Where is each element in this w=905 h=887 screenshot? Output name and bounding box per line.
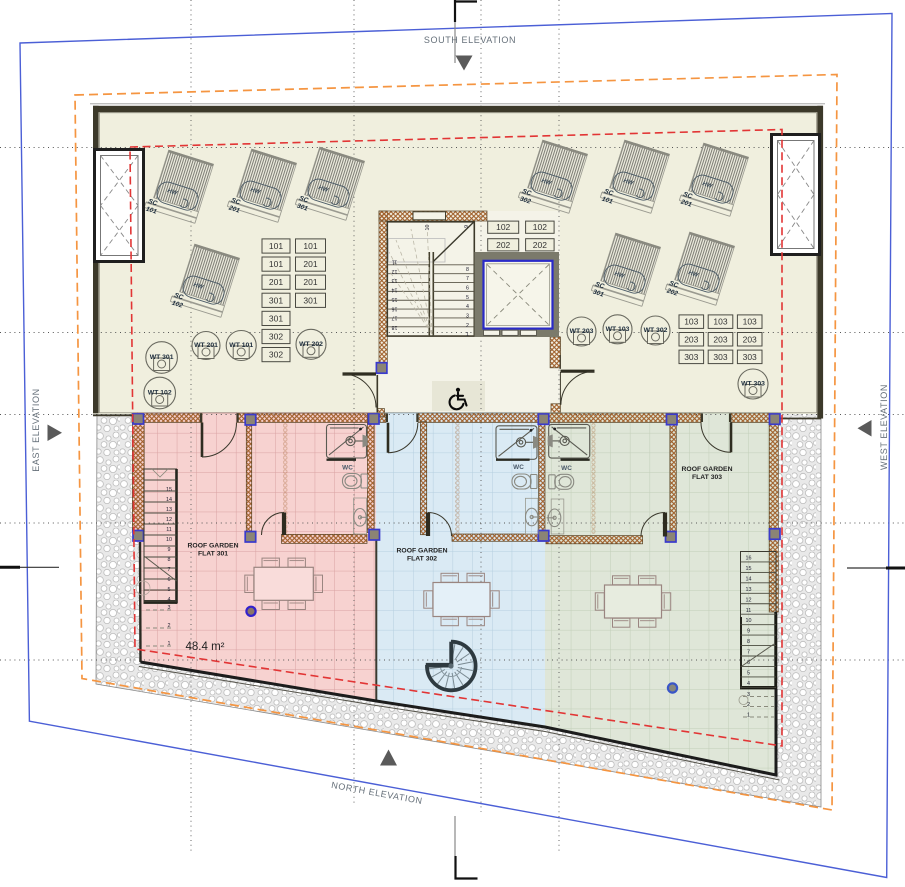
svg-text:2: 2 <box>466 323 469 329</box>
svg-text:3: 3 <box>466 314 469 320</box>
svg-text:9: 9 <box>747 629 750 635</box>
svg-text:6: 6 <box>168 577 171 583</box>
svg-text:WEST ELEVATION: WEST ELEVATION <box>879 384 889 470</box>
svg-text:4: 4 <box>168 597 171 603</box>
svg-text:ROOF GARDEN: ROOF GARDEN <box>188 543 239 550</box>
svg-text:17: 17 <box>392 315 398 321</box>
svg-text:9: 9 <box>464 225 470 228</box>
svg-text:12: 12 <box>746 597 752 603</box>
svg-text:ROOF GARDEN: ROOF GARDEN <box>397 548 448 555</box>
svg-text:16: 16 <box>392 305 398 311</box>
svg-text:303: 303 <box>713 352 727 362</box>
svg-text:15: 15 <box>746 566 752 572</box>
svg-text:201: 201 <box>303 259 317 269</box>
svg-text:13: 13 <box>166 507 172 513</box>
svg-text:11: 11 <box>746 608 752 614</box>
svg-text:WC: WC <box>561 465 572 472</box>
svg-text:202: 202 <box>533 240 547 250</box>
svg-text:13: 13 <box>746 587 752 593</box>
svg-text:101: 101 <box>269 241 283 251</box>
svg-text:WT 201: WT 201 <box>194 342 218 349</box>
svg-text:4: 4 <box>466 304 469 310</box>
svg-text:13: 13 <box>392 277 398 283</box>
svg-text:11: 11 <box>392 259 398 265</box>
svg-text:2: 2 <box>168 623 171 629</box>
svg-text:WT 203: WT 203 <box>570 328 594 335</box>
svg-text:16: 16 <box>746 556 752 562</box>
svg-text:FLAT 302: FLAT 302 <box>407 556 437 563</box>
svg-text:WT 103: WT 103 <box>606 326 630 333</box>
svg-text:4: 4 <box>747 681 750 687</box>
svg-text:302: 302 <box>269 350 283 360</box>
svg-text:8: 8 <box>747 639 750 645</box>
svg-text:15: 15 <box>166 487 172 493</box>
svg-text:WC: WC <box>513 464 524 471</box>
svg-text:15: 15 <box>392 296 398 302</box>
svg-text:102: 102 <box>533 222 547 232</box>
svg-text:1: 1 <box>747 713 750 719</box>
svg-text:WT 102: WT 102 <box>148 390 172 397</box>
svg-text:8: 8 <box>168 557 171 563</box>
svg-text:203: 203 <box>713 334 727 344</box>
svg-text:5: 5 <box>747 670 750 676</box>
svg-text:102: 102 <box>496 222 510 232</box>
svg-text:WT 303: WT 303 <box>741 381 765 388</box>
svg-text:7: 7 <box>168 567 171 573</box>
svg-text:SOUTH ELEVATION: SOUTH ELEVATION <box>424 35 516 45</box>
svg-text:WT 302: WT 302 <box>644 327 668 334</box>
svg-text:ROOF GARDEN: ROOF GARDEN <box>682 466 733 473</box>
svg-text:14: 14 <box>746 576 752 582</box>
svg-text:203: 203 <box>684 334 698 344</box>
svg-text:303: 303 <box>743 352 757 362</box>
svg-text:12: 12 <box>166 517 172 523</box>
svg-text:302: 302 <box>269 332 283 342</box>
svg-text:10: 10 <box>425 225 431 231</box>
svg-text:103: 103 <box>684 317 698 327</box>
svg-text:8: 8 <box>466 267 469 273</box>
svg-text:3: 3 <box>168 605 171 611</box>
svg-text:WT 301: WT 301 <box>150 354 174 361</box>
svg-text:301: 301 <box>269 295 283 305</box>
svg-text:101: 101 <box>303 241 317 251</box>
svg-text:301: 301 <box>269 313 283 323</box>
svg-text:18: 18 <box>392 324 398 330</box>
svg-text:101: 101 <box>269 259 283 269</box>
svg-text:FLAT 301: FLAT 301 <box>198 551 228 558</box>
svg-text:201: 201 <box>269 277 283 287</box>
svg-text:WT 101: WT 101 <box>229 342 253 349</box>
svg-text:WT 202: WT 202 <box>299 341 323 348</box>
svg-text:EAST ELEVATION: EAST ELEVATION <box>31 388 41 471</box>
svg-text:1: 1 <box>168 641 171 647</box>
svg-text:203: 203 <box>743 334 757 344</box>
svg-text:103: 103 <box>713 317 727 327</box>
svg-text:103: 103 <box>743 317 757 327</box>
svg-text:10: 10 <box>166 537 172 543</box>
svg-text:14: 14 <box>392 287 398 293</box>
svg-text:5: 5 <box>466 295 469 301</box>
svg-text:201: 201 <box>303 277 317 287</box>
svg-text:12: 12 <box>392 268 398 274</box>
svg-text:9: 9 <box>168 547 171 553</box>
svg-text:48.4 m²: 48.4 m² <box>186 641 225 653</box>
svg-text:202: 202 <box>496 240 510 250</box>
svg-text:7: 7 <box>747 650 750 656</box>
svg-text:303: 303 <box>684 352 698 362</box>
svg-text:11: 11 <box>166 527 172 533</box>
svg-text:WC: WC <box>342 465 353 472</box>
svg-text:14: 14 <box>166 497 172 503</box>
svg-text:301: 301 <box>303 295 317 305</box>
svg-text:1: 1 <box>466 332 469 338</box>
svg-text:FLAT 303: FLAT 303 <box>692 474 722 481</box>
svg-text:7: 7 <box>466 276 469 282</box>
svg-text:10: 10 <box>746 618 752 624</box>
svg-text:5: 5 <box>168 587 171 593</box>
svg-text:6: 6 <box>466 285 469 291</box>
